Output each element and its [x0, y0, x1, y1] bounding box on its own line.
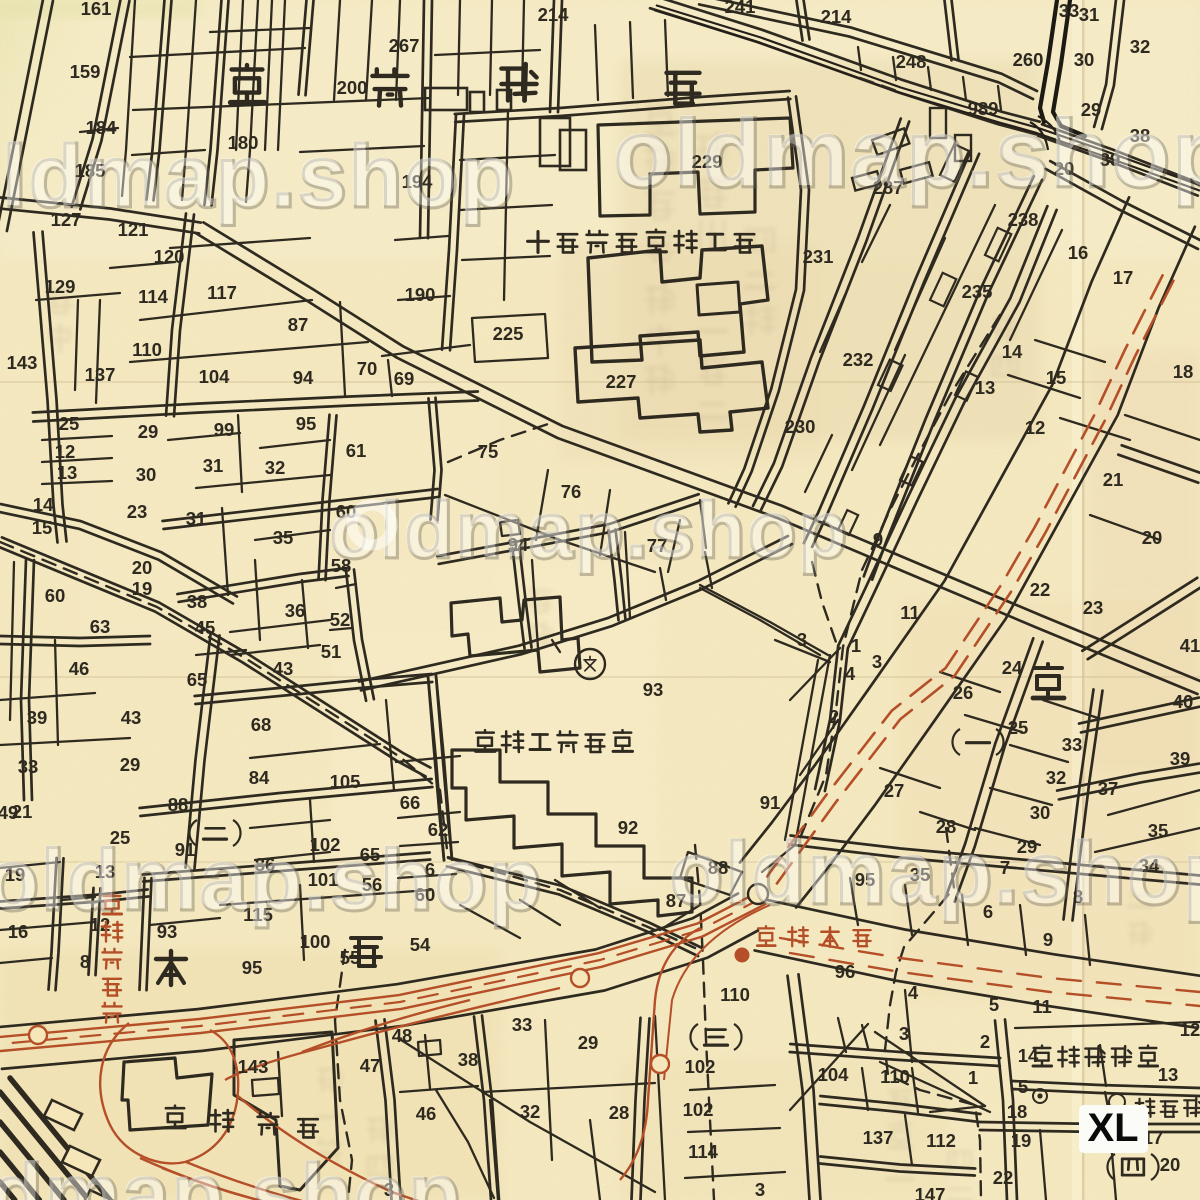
svg-text:41: 41 — [1180, 635, 1200, 656]
svg-text:227: 227 — [606, 371, 637, 392]
svg-text:238: 238 — [1008, 209, 1039, 230]
svg-text:87: 87 — [288, 314, 309, 335]
svg-text:60: 60 — [45, 585, 66, 606]
svg-text:XL: XL — [1087, 1106, 1138, 1150]
svg-text:137: 137 — [85, 364, 116, 385]
svg-text:104: 104 — [199, 366, 231, 387]
svg-text:3: 3 — [797, 629, 807, 650]
svg-text:32: 32 — [265, 457, 286, 478]
svg-text:oldmap.shop: oldmap.shop — [0, 831, 542, 927]
svg-text:260: 260 — [1013, 49, 1044, 70]
svg-text:9: 9 — [873, 529, 883, 550]
svg-text:159: 159 — [70, 61, 101, 82]
svg-text:54: 54 — [410, 934, 431, 955]
svg-text:24: 24 — [1002, 657, 1023, 678]
svg-text:95: 95 — [296, 413, 317, 434]
svg-text:200: 200 — [337, 77, 368, 98]
svg-text:99: 99 — [214, 419, 235, 440]
svg-text:70: 70 — [357, 358, 378, 379]
svg-text:18: 18 — [1007, 1101, 1028, 1122]
svg-text:92: 92 — [618, 817, 639, 838]
svg-text:11: 11 — [1032, 996, 1052, 1017]
svg-text:19: 19 — [132, 578, 153, 599]
svg-text:18: 18 — [1173, 361, 1194, 382]
svg-text:36: 36 — [285, 600, 306, 621]
svg-text:13: 13 — [1158, 1064, 1179, 1085]
svg-text:38: 38 — [187, 591, 208, 612]
svg-text:45: 45 — [195, 617, 216, 638]
svg-text:47: 47 — [360, 1055, 381, 1076]
svg-text:19: 19 — [1011, 1130, 1032, 1151]
svg-text:20: 20 — [1142, 527, 1163, 548]
svg-text:13: 13 — [975, 377, 996, 398]
svg-text:5: 5 — [1018, 1076, 1028, 1097]
svg-text:235: 235 — [962, 281, 993, 302]
svg-text:21: 21 — [1103, 469, 1124, 490]
svg-text:161: 161 — [81, 0, 112, 19]
svg-text:4: 4 — [845, 663, 856, 684]
svg-text:100: 100 — [300, 931, 331, 952]
svg-text:63: 63 — [90, 616, 111, 637]
svg-text:94: 94 — [293, 367, 314, 388]
svg-text:17: 17 — [1113, 267, 1134, 288]
svg-text:69: 69 — [394, 368, 415, 389]
svg-text:96: 96 — [835, 961, 856, 982]
svg-text:190: 190 — [405, 284, 436, 305]
svg-text:3: 3 — [755, 1179, 765, 1200]
svg-text:38: 38 — [458, 1049, 479, 1070]
svg-text:143: 143 — [238, 1056, 269, 1077]
svg-text:225: 225 — [493, 323, 524, 344]
svg-text:23: 23 — [1083, 597, 1104, 618]
svg-text:43: 43 — [273, 658, 294, 679]
svg-text:8: 8 — [80, 951, 90, 972]
svg-text:20: 20 — [1160, 1154, 1181, 1175]
svg-text:13: 13 — [57, 462, 78, 483]
svg-text:5: 5 — [989, 994, 999, 1015]
svg-text:248: 248 — [896, 51, 927, 72]
svg-text:14: 14 — [33, 494, 54, 515]
svg-text:oldmap.shop: oldmap.shop — [328, 484, 848, 573]
svg-text:105: 105 — [330, 771, 361, 792]
svg-text:66: 66 — [400, 792, 421, 813]
svg-text:30: 30 — [1074, 49, 1095, 70]
svg-text:75: 75 — [478, 441, 499, 462]
svg-text:31: 31 — [203, 455, 224, 476]
svg-text:oldmap.shop: oldmap.shop — [0, 125, 515, 224]
svg-text:43: 43 — [121, 707, 142, 728]
svg-text:oldmap.shop: oldmap.shop — [612, 99, 1200, 206]
svg-text:11: 11 — [900, 602, 920, 623]
svg-text:117: 117 — [207, 282, 237, 303]
svg-text:88: 88 — [168, 794, 189, 815]
svg-text:65: 65 — [187, 669, 208, 690]
svg-text:40: 40 — [1173, 691, 1194, 712]
svg-text:147: 147 — [915, 1184, 946, 1200]
svg-text:16: 16 — [1068, 242, 1089, 263]
svg-text:29: 29 — [578, 1032, 599, 1053]
svg-text:2: 2 — [829, 706, 839, 727]
svg-text:14: 14 — [1002, 341, 1023, 362]
svg-text:25: 25 — [1008, 717, 1029, 738]
svg-text:oldmap.shop: oldmap.shop — [0, 1146, 461, 1200]
svg-text:30: 30 — [1030, 802, 1051, 823]
svg-text:12: 12 — [1025, 417, 1046, 438]
svg-text:214: 214 — [538, 4, 570, 25]
svg-text:232: 232 — [843, 349, 874, 370]
svg-text:110: 110 — [720, 984, 750, 1005]
svg-text:114: 114 — [688, 1141, 719, 1162]
svg-text:32: 32 — [1130, 36, 1151, 57]
svg-text:35: 35 — [273, 527, 294, 548]
svg-text:1: 1 — [851, 635, 861, 656]
svg-text:110: 110 — [880, 1066, 910, 1087]
svg-text:48: 48 — [392, 1025, 413, 1046]
svg-text:267: 267 — [389, 35, 420, 56]
svg-text:22: 22 — [993, 1167, 1014, 1188]
svg-text:91: 91 — [760, 792, 781, 813]
svg-text:110: 110 — [132, 339, 162, 360]
svg-text:52: 52 — [330, 609, 351, 630]
svg-text:29: 29 — [138, 421, 159, 442]
svg-text:39: 39 — [27, 707, 48, 728]
svg-text:20: 20 — [132, 557, 153, 578]
svg-text:28: 28 — [609, 1102, 630, 1123]
svg-text:23: 23 — [127, 501, 148, 522]
svg-text:29: 29 — [120, 754, 141, 775]
svg-text:112: 112 — [926, 1130, 956, 1151]
svg-text:31: 31 — [186, 508, 207, 529]
svg-text:33: 33 — [512, 1014, 533, 1035]
svg-text:49: 49 — [0, 802, 18, 823]
svg-text:61: 61 — [346, 440, 367, 461]
svg-text:15: 15 — [1046, 367, 1067, 388]
svg-text:84: 84 — [249, 767, 270, 788]
svg-text:9: 9 — [1043, 929, 1053, 950]
svg-text:231: 231 — [803, 246, 834, 267]
svg-text:37: 37 — [1098, 778, 1119, 799]
svg-text:51: 51 — [321, 641, 342, 662]
svg-text:39: 39 — [1170, 748, 1191, 769]
svg-text:3: 3 — [872, 651, 882, 672]
svg-text:30: 30 — [136, 464, 157, 485]
svg-text:15: 15 — [32, 517, 53, 538]
svg-text:27: 27 — [884, 780, 905, 801]
svg-text:33: 33 — [1062, 734, 1083, 755]
svg-text:102: 102 — [685, 1056, 716, 1077]
svg-text:230: 230 — [785, 416, 816, 437]
svg-text:25: 25 — [59, 413, 80, 434]
svg-text:46: 46 — [416, 1103, 437, 1124]
svg-text:1: 1 — [968, 1067, 978, 1088]
svg-text:143: 143 — [7, 352, 38, 373]
svg-text:46: 46 — [69, 658, 90, 679]
svg-text:33: 33 — [18, 756, 39, 777]
svg-text:137: 137 — [863, 1127, 894, 1148]
svg-text:22: 22 — [1030, 579, 1051, 600]
svg-text:33: 33 — [1059, 0, 1080, 21]
svg-text:31: 31 — [1079, 4, 1100, 25]
svg-text:129: 129 — [45, 276, 76, 297]
svg-text:4: 4 — [908, 982, 919, 1003]
svg-text:114: 114 — [138, 286, 169, 307]
svg-text:32: 32 — [1046, 767, 1067, 788]
svg-text:oldmap.shop: oldmap.shop — [668, 822, 1200, 921]
svg-text:102: 102 — [683, 1099, 714, 1120]
svg-text:12: 12 — [55, 441, 76, 462]
svg-text:214: 214 — [821, 6, 853, 27]
svg-text:104: 104 — [818, 1064, 850, 1085]
svg-text:95: 95 — [242, 957, 263, 978]
svg-text:68: 68 — [251, 714, 272, 735]
svg-text:32: 32 — [520, 1101, 541, 1122]
svg-text:26: 26 — [953, 682, 974, 703]
svg-text:12: 12 — [1180, 1019, 1200, 1040]
svg-text:241: 241 — [725, 0, 756, 17]
svg-text:120: 120 — [154, 246, 185, 267]
svg-text:2: 2 — [980, 1031, 990, 1052]
svg-text:3: 3 — [899, 1023, 909, 1044]
svg-text:93: 93 — [643, 679, 664, 700]
